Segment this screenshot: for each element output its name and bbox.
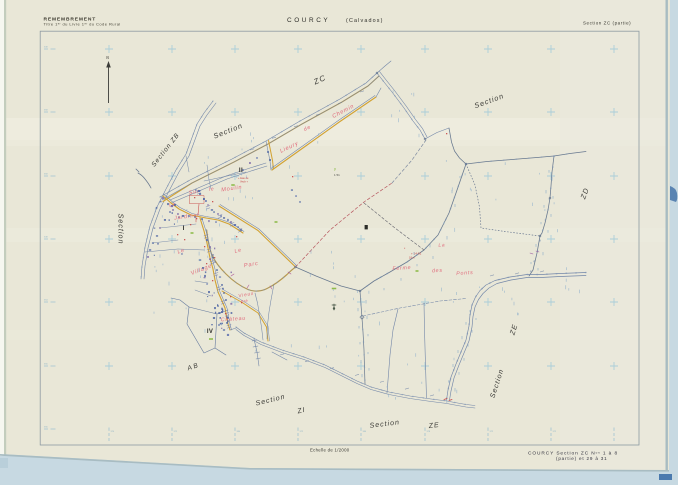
svg-text:18 m: 18 m xyxy=(409,256,415,260)
svg-text:+ 14-51: + 14-51 xyxy=(411,252,422,256)
svg-text:La: La xyxy=(438,242,445,248)
svg-text:(Calvados): (Calvados) xyxy=(346,18,384,24)
svg-text:des: des xyxy=(432,268,443,275)
svg-text:+ Eau de: + Eau de xyxy=(238,176,249,180)
svg-text:COURCY: COURCY xyxy=(287,17,330,24)
svg-text:Echelle de 1/2000: Echelle de 1/2000 xyxy=(310,448,350,453)
svg-text:ZE: ZE xyxy=(427,422,440,430)
svg-text:IV: IV xyxy=(207,329,213,335)
svg-text:1 51: 1 51 xyxy=(334,173,340,177)
svg-text:Ponts: Ponts xyxy=(456,270,474,277)
svg-text:Vech +: Vech + xyxy=(240,180,248,184)
svg-text:Section: Section xyxy=(117,214,126,245)
svg-text:Titre 1er du Livre 1er du Code: Titre 1er du Livre 1er du Code Rural xyxy=(44,22,121,27)
svg-text:I: I xyxy=(183,225,185,232)
svg-text:(partie) et 29 à 31: (partie) et 29 à 31 xyxy=(556,456,607,461)
svg-text:Section ZC (partie): Section ZC (partie) xyxy=(583,20,631,25)
svg-text:y: y xyxy=(334,166,336,171)
svg-text:le: le xyxy=(209,186,215,193)
